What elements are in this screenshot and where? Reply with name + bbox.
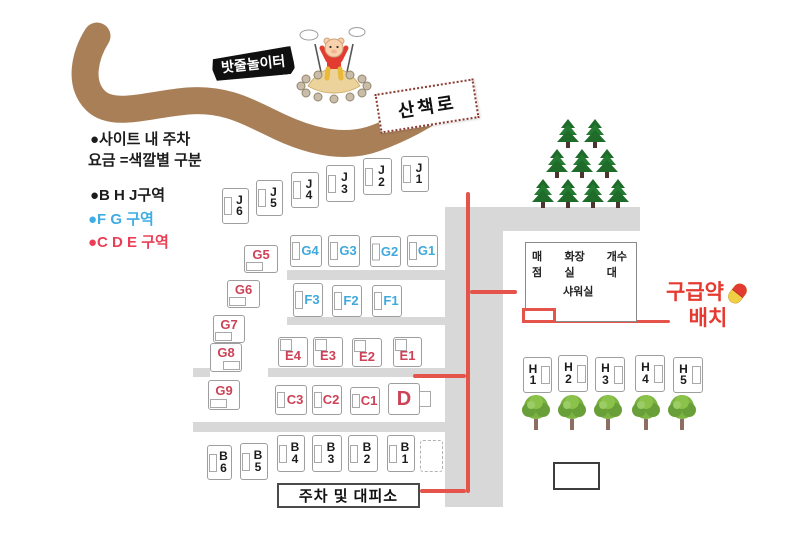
site-label: J6 — [236, 195, 243, 217]
site-label: G3 — [339, 245, 356, 257]
site-D: D — [388, 383, 420, 415]
site-parking-tab — [223, 361, 240, 370]
road-segment — [287, 317, 445, 325]
site-parking-tab — [295, 291, 303, 309]
site-F2: F2 — [332, 285, 362, 317]
site-label: H2 — [564, 362, 573, 384]
site-J6: J6 — [222, 188, 249, 224]
first-aid-text2: 배치 — [650, 306, 766, 332]
legend-zone-cde: ●C D E 구역 — [88, 231, 169, 252]
site-label: G5 — [252, 249, 269, 261]
site-G1: G1 — [407, 235, 438, 267]
site-parking-tab — [403, 165, 411, 183]
site-label: J1 — [416, 163, 423, 185]
site-parking-tab — [395, 339, 407, 351]
site-J1: J1 — [401, 156, 429, 192]
site-B4: B4 — [277, 435, 305, 472]
site-G2: G2 — [370, 236, 401, 267]
pine-tree-icon — [569, 148, 595, 178]
site-parking-tab — [224, 197, 232, 215]
facility-toilet-label: 화장실 — [565, 248, 594, 280]
site-G8: G8 — [210, 343, 242, 372]
pine-tree-icon — [605, 178, 631, 208]
walking-trail-sign: 산책로 — [374, 78, 479, 133]
site-G5: G5 — [244, 245, 278, 273]
site-parking-tab — [334, 292, 342, 310]
legend-zone-bhj: ●B H J구역 — [90, 184, 165, 205]
site-J5: J5 — [256, 180, 283, 216]
site-parking-tab — [354, 340, 366, 352]
dashed-outline-box — [420, 440, 443, 472]
facility-sink-label: 개수대 — [607, 248, 636, 280]
route-line — [470, 290, 517, 294]
site-G7: G7 — [213, 315, 245, 343]
site-label: G1 — [418, 245, 435, 257]
round-tree-icon — [666, 393, 698, 431]
site-E2: E2 — [352, 338, 382, 367]
site-label: B5 — [254, 450, 263, 472]
site-parking-tab — [314, 445, 322, 463]
pill-icon — [725, 281, 750, 306]
site-parking-tab — [292, 242, 300, 260]
site-parking-tab — [277, 392, 285, 408]
facility-shower-label: 샤워실 — [563, 286, 593, 298]
site-label: C2 — [323, 394, 340, 406]
site-parking-tab — [229, 297, 246, 306]
round-tree-icon — [592, 393, 624, 431]
site-label: B1 — [401, 442, 410, 464]
site-label: H5 — [679, 364, 688, 386]
legend-parking-note-line2: 요금 =색깔별 구분 — [88, 149, 202, 170]
site-F1: F1 — [372, 285, 402, 317]
site-label: H4 — [641, 362, 650, 384]
route-line — [420, 489, 466, 493]
rope-playground-label: 밧줄놀이터 — [211, 46, 296, 82]
site-label: H1 — [529, 364, 538, 386]
site-B1: B1 — [387, 435, 415, 472]
campground-map: 밧줄놀이터 산책로 ●사이트 내 주차 요금 =색깔별 구분 ●B H J구역 … — [0, 0, 800, 543]
site-label: E2 — [359, 351, 375, 363]
site-B2: B2 — [348, 435, 378, 472]
pine-tree-icon — [530, 178, 556, 208]
round-tree-icon — [630, 393, 662, 431]
site-label: D — [397, 390, 411, 408]
site-parking-tab — [246, 262, 263, 271]
site-label: G7 — [220, 319, 237, 331]
site-H5: H5 — [673, 357, 703, 393]
site-label: E3 — [320, 350, 336, 362]
site-B6: B6 — [207, 445, 232, 480]
site-parking-tab — [330, 242, 338, 260]
site-H2: H2 — [558, 355, 588, 392]
site-B5: B5 — [240, 443, 268, 480]
site-parking-tab — [258, 189, 266, 207]
site-G6: G6 — [227, 280, 260, 308]
site-label: B6 — [219, 451, 228, 473]
site-label: G8 — [217, 347, 234, 359]
site-parking-tab — [279, 445, 287, 463]
site-parking-tab — [350, 445, 358, 463]
site-G3: G3 — [328, 235, 360, 267]
site-C3: C3 — [275, 385, 307, 415]
pine-tree-icon — [555, 178, 581, 208]
parking-shelter-box: 주차 및 대피소 — [277, 483, 420, 508]
site-C1: C1 — [350, 387, 380, 415]
site-parking-tab — [293, 181, 301, 199]
site-label: G4 — [301, 245, 318, 257]
road-segment — [287, 270, 445, 280]
site-H1: H1 — [523, 357, 552, 393]
site-label: F1 — [383, 295, 398, 307]
site-parking-tab — [372, 243, 380, 260]
site-E1: E1 — [393, 337, 422, 367]
site-C2: C2 — [312, 385, 342, 415]
site-label: C1 — [361, 395, 378, 407]
site-parking-tab — [242, 453, 250, 471]
pine-tree-icon — [580, 178, 606, 208]
site-parking-tab — [692, 366, 701, 384]
site-label: C3 — [287, 394, 304, 406]
site-label: G2 — [381, 246, 398, 258]
first-aid-text: 구급약 — [666, 280, 724, 306]
site-J2: J2 — [363, 158, 392, 195]
pine-tree-icon — [555, 118, 581, 148]
site-label: J4 — [306, 179, 313, 201]
site-parking-tab — [328, 175, 336, 193]
site-parking-tab — [654, 365, 663, 383]
site-parking-tab — [210, 399, 227, 408]
road-segment — [193, 422, 445, 432]
site-label: B4 — [291, 442, 300, 464]
site-F3: F3 — [293, 283, 323, 317]
site-E4: E4 — [278, 337, 308, 367]
site-label: B2 — [363, 442, 372, 464]
site-parking-tab — [365, 168, 373, 186]
site-G9: G9 — [208, 380, 240, 410]
legend-parking-note-line1: ●사이트 내 주차 — [90, 128, 190, 149]
route-line — [466, 192, 470, 493]
site-label: E4 — [285, 350, 301, 362]
site-E3: E3 — [313, 337, 343, 367]
site-label: H3 — [601, 363, 610, 385]
site-parking-tab — [577, 365, 586, 383]
site-label: G6 — [235, 284, 252, 296]
route-line — [413, 374, 466, 378]
site-H4: H4 — [635, 355, 665, 392]
site-J3: J3 — [326, 165, 355, 202]
site-parking-tab — [352, 394, 360, 408]
site-label: E1 — [400, 350, 416, 362]
site-G4: G4 — [290, 235, 322, 267]
site-label: J2 — [378, 165, 385, 187]
site-label: J5 — [270, 187, 277, 209]
unlabeled-structure-box — [553, 462, 600, 490]
site-label: J3 — [341, 172, 348, 194]
round-tree-icon — [556, 393, 588, 431]
site-parking-tab — [541, 366, 550, 384]
legend-zone-fg: ●F G 구역 — [88, 208, 154, 229]
first-aid-note: 구급약 배치 — [650, 280, 766, 333]
site-J4: J4 — [291, 172, 319, 208]
site-label: F2 — [343, 295, 358, 307]
site-parking-tab — [280, 339, 292, 351]
site-H3: H3 — [595, 357, 625, 392]
facility-store-label: 매점 — [532, 248, 552, 280]
pine-tree-icon — [582, 118, 608, 148]
site-parking-tab — [374, 292, 382, 310]
site-parking-tab — [419, 391, 431, 407]
site-label: B3 — [327, 442, 336, 464]
site-parking-tab — [314, 392, 322, 408]
site-parking-tab — [315, 339, 327, 351]
rope-playground-illustration — [294, 22, 374, 106]
site-label: G9 — [215, 385, 232, 397]
first-aid-marker-box — [522, 308, 556, 323]
site-parking-tab — [614, 366, 623, 384]
road-segment — [193, 368, 210, 377]
site-parking-tab — [215, 332, 232, 341]
site-parking-tab — [389, 445, 397, 463]
round-tree-icon — [520, 393, 552, 431]
site-B3: B3 — [312, 435, 342, 472]
site-label: F3 — [304, 294, 319, 306]
pine-tree-icon — [544, 148, 570, 178]
road-segment — [445, 207, 503, 507]
pine-tree-icon — [594, 148, 620, 178]
site-parking-tab — [209, 454, 217, 472]
site-parking-tab — [409, 242, 417, 260]
